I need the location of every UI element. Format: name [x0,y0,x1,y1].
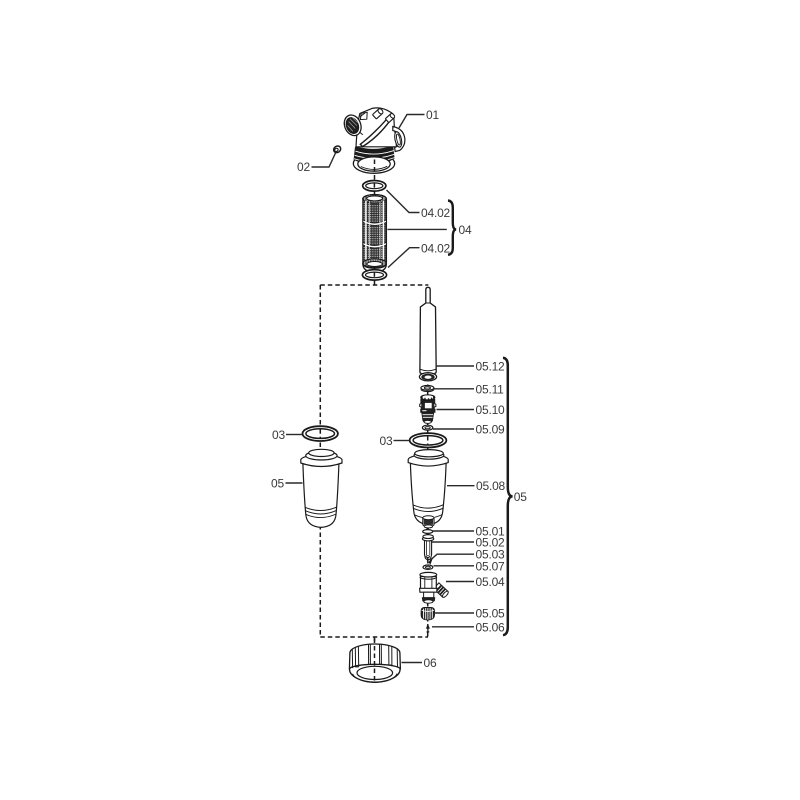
svg-text:05.05: 05.05 [476,607,506,621]
svg-text:01: 01 [426,108,439,122]
svg-text:05.04: 05.04 [476,575,506,589]
svg-text:02: 02 [297,160,310,174]
svg-text:05.12: 05.12 [476,360,506,374]
svg-text:05.07: 05.07 [476,559,506,573]
svg-text:05: 05 [271,477,284,491]
svg-text:05.09: 05.09 [476,423,506,437]
svg-text:03: 03 [272,428,285,442]
svg-text:04.02: 04.02 [421,206,451,220]
svg-text:06: 06 [424,656,437,670]
svg-text:04.02: 04.02 [421,242,451,256]
svg-text:05.08: 05.08 [476,479,506,493]
svg-text:03: 03 [380,434,393,448]
svg-text:05.11: 05.11 [476,382,505,396]
svg-text:05.10: 05.10 [476,403,506,417]
svg-text:05.06: 05.06 [476,620,506,634]
svg-text:04: 04 [459,223,472,237]
svg-text:05: 05 [514,490,527,504]
